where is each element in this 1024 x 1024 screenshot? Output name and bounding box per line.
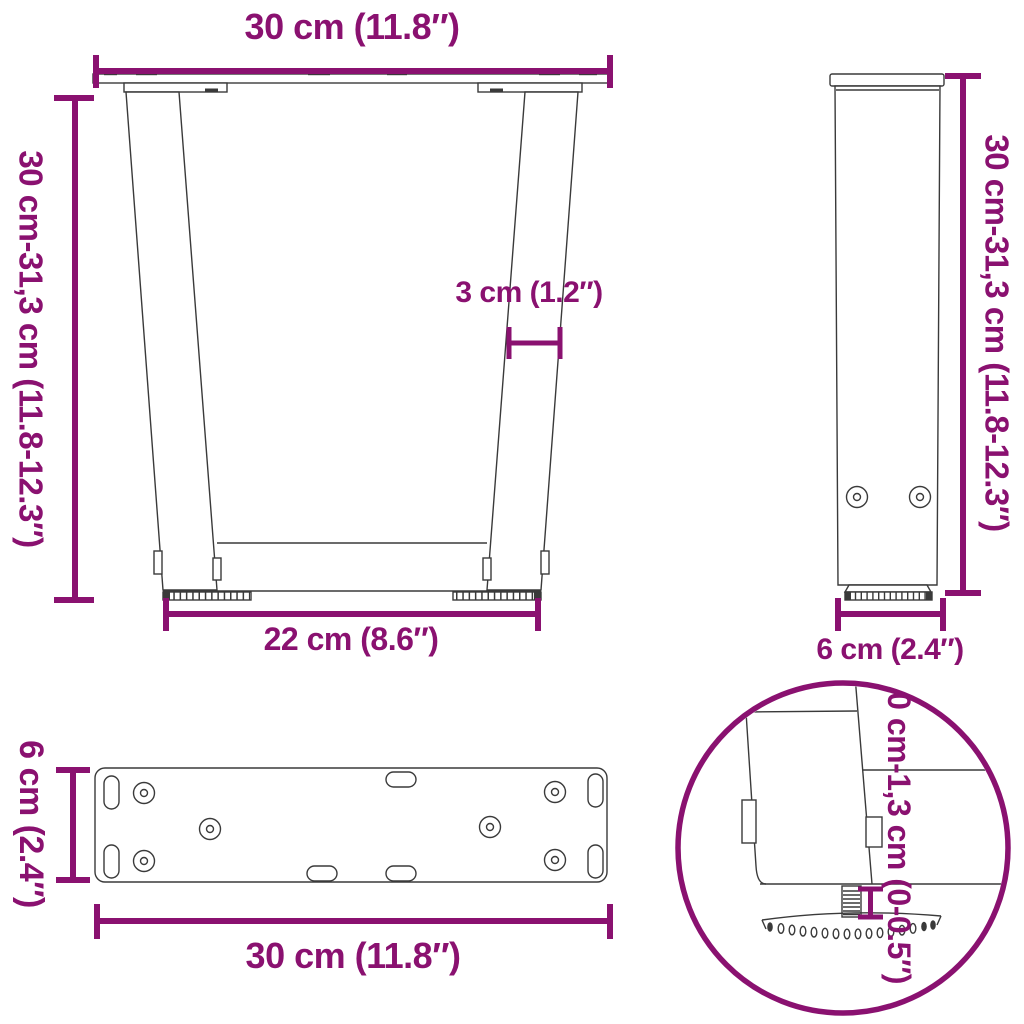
dim-side-height (945, 76, 981, 593)
right-leg-outer-tab (541, 551, 549, 574)
dimension-diagram: 30 cm (11.8″) 30 cm-31,3 cm (11.8-12.3″)… (0, 0, 1024, 1024)
label-plate-width: 30 cm (11.8″) (246, 938, 461, 974)
left-leg-outer-tab (154, 551, 162, 574)
mounting-plate (95, 768, 607, 882)
screw-thread-lines (843, 891, 860, 915)
front-left-leg (126, 92, 217, 590)
detail-right-tab (866, 817, 882, 847)
dim-front-height (54, 98, 94, 600)
side-leg-body (835, 86, 940, 585)
front-view-drawing (93, 73, 610, 600)
label-front-height: 30 cm-31,3 cm (11.8-12.3″) (15, 150, 48, 547)
detail-left-tab (742, 800, 756, 843)
front-left-foot-knurl (163, 592, 251, 600)
plate-top-view-drawing (95, 768, 607, 882)
dim-plate-width (97, 904, 610, 939)
left-leg-inner-tab (213, 558, 221, 580)
dim-side-width (838, 598, 943, 631)
front-top-plate (93, 74, 610, 83)
detail-view-drawing (678, 676, 1008, 1013)
side-top-plate (830, 74, 944, 86)
side-view-drawing (830, 74, 944, 600)
label-front-width-top: 30 cm (11.8″) (245, 9, 460, 45)
detail-magnifier-circle (678, 683, 1008, 1013)
right-leg-inner-tab (483, 558, 491, 580)
dim-plate-depth (56, 770, 90, 880)
diagram-linework (0, 0, 1024, 1024)
side-foot-knurl (845, 585, 932, 600)
label-side-width: 6 cm (2.4″) (816, 635, 963, 665)
label-foot-adjust-range: 0 cm-1,3 cm (0-0.5″) (883, 692, 915, 984)
label-leg-thickness: 3 cm (1.2″) (455, 278, 602, 308)
front-bracket-right-weld (490, 89, 503, 93)
detail-leg-top-edge (746, 711, 857, 712)
label-plate-depth: 6 cm (2.4″) (14, 740, 48, 908)
label-front-width-bottom: 22 cm (8.6″) (264, 623, 439, 655)
front-right-foot-knurl (453, 592, 541, 600)
front-bracket-left-weld (205, 89, 218, 93)
label-side-height: 30 cm-31,3 cm (11.8-12.3″) (981, 134, 1014, 531)
